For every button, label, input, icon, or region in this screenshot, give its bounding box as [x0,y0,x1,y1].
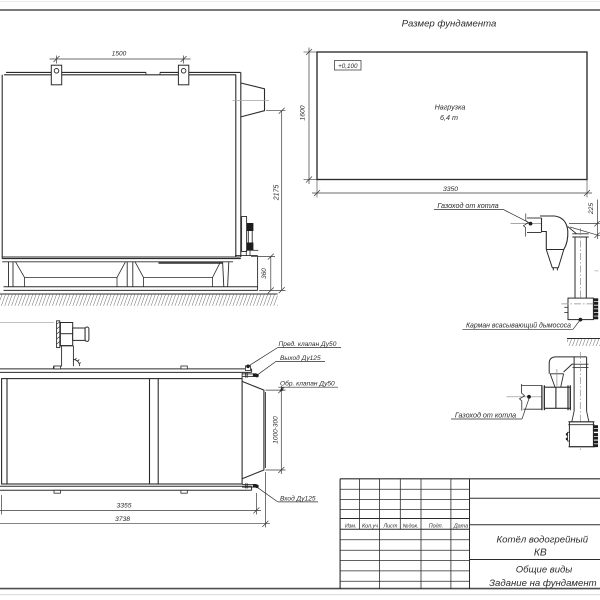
svg-text:Дата: Дата [453,523,468,529]
svg-text:6,4 т: 6,4 т [440,113,458,122]
svg-text:Карман всасывающий дымососа: Карман всасывающий дымососа [466,322,571,330]
svg-text:КВ: КВ [534,548,547,559]
svg-text:+0,100: +0,100 [338,63,358,70]
svg-text:Размер фундамента: Размер фундамента [402,19,497,30]
svg-text:Вход Ду125: Вход Ду125 [280,494,316,502]
svg-text:3738: 3738 [115,516,130,523]
svg-text:Пред. клапан Ду50: Пред. клапан Ду50 [279,340,337,348]
svg-text:Обр. клапан Ду50: Обр. клапан Ду50 [280,379,335,387]
svg-text:Выход Ду125: Выход Ду125 [280,354,321,362]
svg-text:1500: 1500 [112,51,127,58]
svg-text:360: 360 [261,268,268,279]
svg-text:Общие виды: Общие виды [516,565,573,576]
svg-text:3355: 3355 [116,503,131,510]
svg-text:Кол.уч: Кол.уч [362,523,378,529]
svg-text:2175: 2175 [274,185,281,202]
svg-text:Задание на фундамент: Задание на фундамент [489,578,596,589]
svg-text:1600: 1600 [300,105,307,120]
svg-text:Лист: Лист [382,523,397,529]
svg-text:Нагрузка: Нагрузка [435,103,466,112]
svg-text:Подп.: Подп. [429,523,443,529]
svg-text:1000-300: 1000-300 [272,416,279,444]
svg-text:225: 225 [588,203,595,216]
svg-text:Газоход от котла: Газоход от котла [455,410,516,419]
svg-text:№док.: №док. [403,523,419,529]
svg-text:Котёл водогрейный: Котёл водогрейный [497,535,589,546]
svg-text:Газоход от котла: Газоход от котла [437,201,498,210]
svg-text:3350: 3350 [443,186,458,193]
svg-text:Изм.: Изм. [345,523,357,529]
